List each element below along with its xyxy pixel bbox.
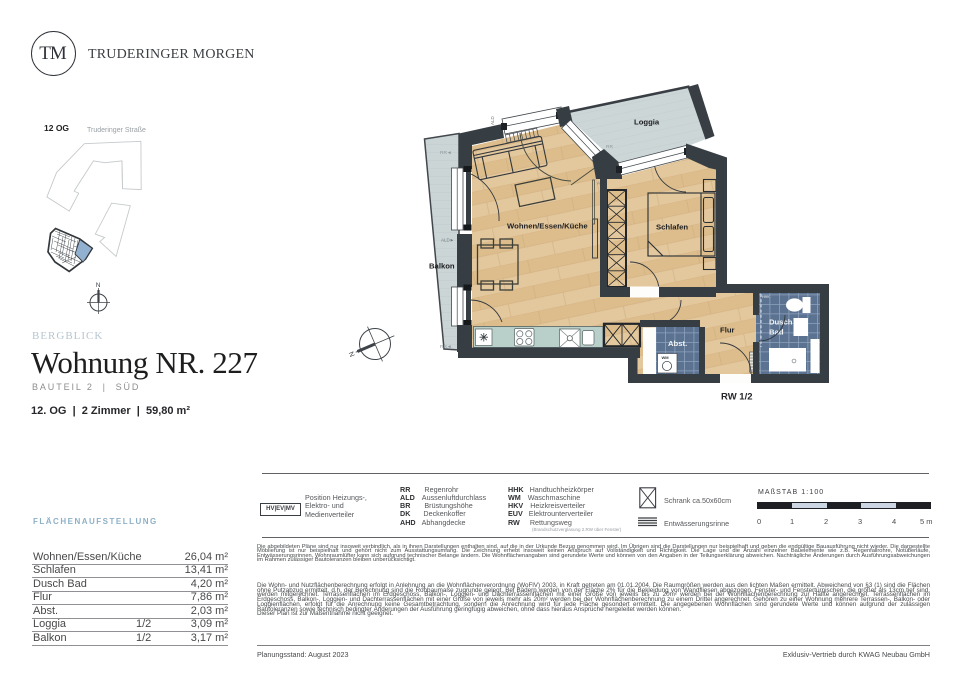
svg-text:Balkon: Balkon	[429, 262, 455, 271]
svg-text:Flur: Flur	[720, 326, 735, 335]
svg-text:Abst.: Abst.	[668, 339, 687, 348]
svg-text:RR◄: RR◄	[440, 344, 452, 350]
svg-text:Loggia: Loggia	[634, 118, 660, 127]
svg-text:Schlafen: Schlafen	[656, 223, 688, 232]
svg-text:N: N	[348, 350, 356, 357]
svg-text:RR: RR	[606, 144, 613, 150]
svg-text:ALD: ALD	[490, 115, 495, 125]
svg-text:Truderinger Straße: Truderinger Straße	[87, 127, 146, 134]
svg-text:WM: WM	[662, 355, 670, 360]
svg-text:Bad: Bad	[769, 328, 784, 337]
svg-text:RW 1/2: RW 1/2	[721, 392, 753, 403]
svg-text:N: N	[96, 282, 101, 289]
svg-text:12 OG: 12 OG	[44, 123, 69, 133]
svg-text:RR◄: RR◄	[440, 150, 452, 156]
svg-text:Dusch: Dusch	[769, 318, 793, 327]
svg-text:ALD►: ALD►	[441, 238, 454, 243]
svg-text:HHK: HHK	[762, 295, 770, 299]
svg-text:Wohnen/Essen/Küche: Wohnen/Essen/Küche	[507, 222, 588, 231]
